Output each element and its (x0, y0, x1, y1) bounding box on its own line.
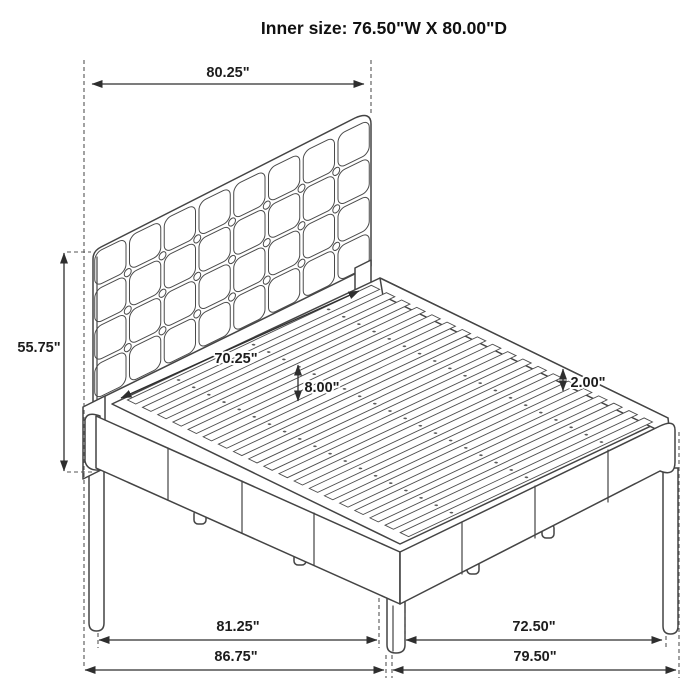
page-title: Inner size: 76.50"W X 80.00"D (261, 18, 507, 38)
bed-dimension-diagram-page: 80.25" 55.75" 70.25" 8.00" 2.00" 81.25" … (0, 0, 700, 700)
dimension-label: 72.50" (512, 619, 555, 635)
dimension-label: 2.00" (570, 375, 605, 391)
dimension-top-width: 80.25" (92, 65, 364, 84)
front-leg (387, 596, 405, 653)
dimension-bottom-left-inner: 81.25" (99, 619, 377, 640)
dimension-label: 55.75" (17, 340, 60, 356)
dimension-label: 81.25" (216, 619, 259, 635)
dimension-label: 70.25" (214, 351, 257, 367)
dimension-label: 8.00" (304, 380, 339, 396)
bed-dimension-diagram: 80.25" 55.75" 70.25" 8.00" 2.00" 81.25" … (0, 0, 700, 700)
dimension-label: 79.50" (513, 649, 556, 665)
dimension-bottom-left-outer: 86.75" (85, 649, 384, 670)
dimension-bottom-right-outer: 79.50" (393, 649, 676, 670)
dimension-label: 80.25" (206, 65, 249, 81)
dimension-label: 86.75" (214, 649, 257, 665)
headboard-left-leg (89, 470, 104, 631)
dimension-bottom-right-inner: 72.50" (406, 619, 662, 640)
dimension-headboard-height: 55.75" (17, 253, 64, 471)
right-leg (663, 468, 678, 634)
